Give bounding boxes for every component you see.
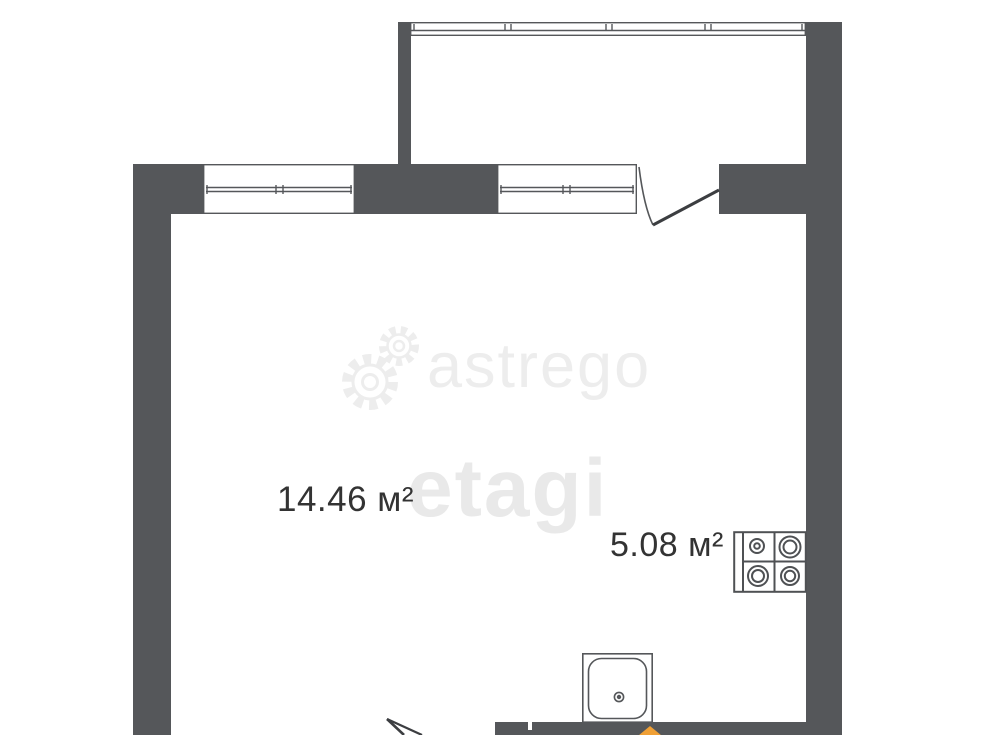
bottom-wall-joint [528, 722, 532, 730]
balcony-door [630, 160, 730, 240]
right-wall [806, 22, 842, 735]
watermark-astrego: astrego [427, 330, 651, 402]
floor-plan: astrego etagi [0, 0, 1000, 735]
entrance-door [370, 710, 430, 735]
watermark-etagi: etagi [407, 442, 608, 536]
window-left [203, 164, 355, 214]
sink-icon [582, 653, 653, 723]
balcony-glazing [410, 22, 806, 36]
kitchen-area-label: 5.08 м² [610, 526, 724, 565]
top-wall-right [719, 164, 806, 214]
balcony-left-wall [398, 22, 411, 165]
top-wall-left [133, 164, 203, 214]
etagi-logo-triangle [633, 726, 667, 735]
left-wall [133, 214, 171, 735]
astrego-gears-icon [336, 322, 436, 422]
stove-icon [733, 531, 807, 593]
room-area-label: 14.46 м² [277, 480, 414, 520]
window-right [497, 164, 637, 214]
top-wall-middle [355, 164, 497, 214]
